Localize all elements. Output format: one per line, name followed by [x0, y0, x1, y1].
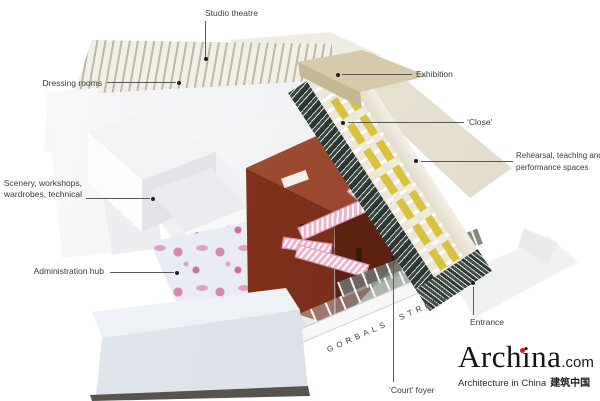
- leader-dot-studio-theatre: [204, 57, 208, 61]
- leader-dot-close: [341, 121, 345, 125]
- leader-dot-administration: [175, 271, 179, 275]
- label-scenery-line2: wardrobes, technical: [2, 189, 82, 200]
- logo-brand-row: Archina.com: [458, 341, 594, 372]
- leader-line-studio-theatre: [205, 21, 206, 58]
- logo-tagline-cjk: 建筑中国: [550, 378, 590, 389]
- logo-domain-text: .com: [561, 354, 594, 371]
- leader-dot-exhibition: [336, 73, 340, 77]
- leader-dot-scenery: [151, 197, 155, 201]
- logo-tagline-text: Architecture in China: [458, 378, 546, 389]
- label-studio-theatre: Studio theatre: [205, 8, 258, 19]
- logo-i-dot-icon: [520, 348, 525, 353]
- label-administration-hub: Administration hub: [28, 266, 104, 277]
- label-close: ‘Close’: [467, 117, 493, 128]
- figure-annotated-architectural-model: Studio theatre Dressing rooms Exhibition…: [0, 0, 600, 401]
- leader-dot-entrance: [471, 281, 475, 285]
- label-rehearsal-line1: Rehearsal, teaching and: [516, 150, 600, 162]
- leader-line-close: [348, 122, 464, 123]
- leader-line-administration: [110, 272, 174, 273]
- label-rehearsal-line2: performance spaces: [516, 162, 600, 174]
- leader-line-entrance: [473, 287, 474, 315]
- leader-line-scenery: [86, 198, 150, 199]
- watermark-logo: Archina.com Architecture in China建筑中国: [458, 341, 594, 389]
- leader-dot-court-foyer: [391, 256, 395, 260]
- label-court-foyer: ‘Court’ foyer: [389, 385, 435, 396]
- leader-line-exhibition: [342, 74, 412, 75]
- leader-line-dressing-rooms: [107, 82, 176, 83]
- label-dressing-rooms: Dressing rooms: [20, 78, 102, 89]
- leader-dot-dressing-rooms: [177, 81, 181, 85]
- leader-line-rehearsal: [421, 161, 513, 162]
- label-scenery-line1: Scenery, workshops,: [2, 178, 82, 189]
- label-scenery-workshops: Scenery, workshops, wardrobes, technical: [2, 178, 82, 200]
- label-exhibition: Exhibition: [416, 69, 453, 80]
- label-entrance: Entrance: [470, 317, 504, 328]
- logo-brand-text: Archina: [458, 339, 561, 374]
- leader-dot-rehearsal: [414, 159, 418, 163]
- label-rehearsal-spaces: Rehearsal, teaching and performance spac…: [516, 150, 600, 174]
- logo-tagline-row: Architecture in China建筑中国: [458, 374, 594, 389]
